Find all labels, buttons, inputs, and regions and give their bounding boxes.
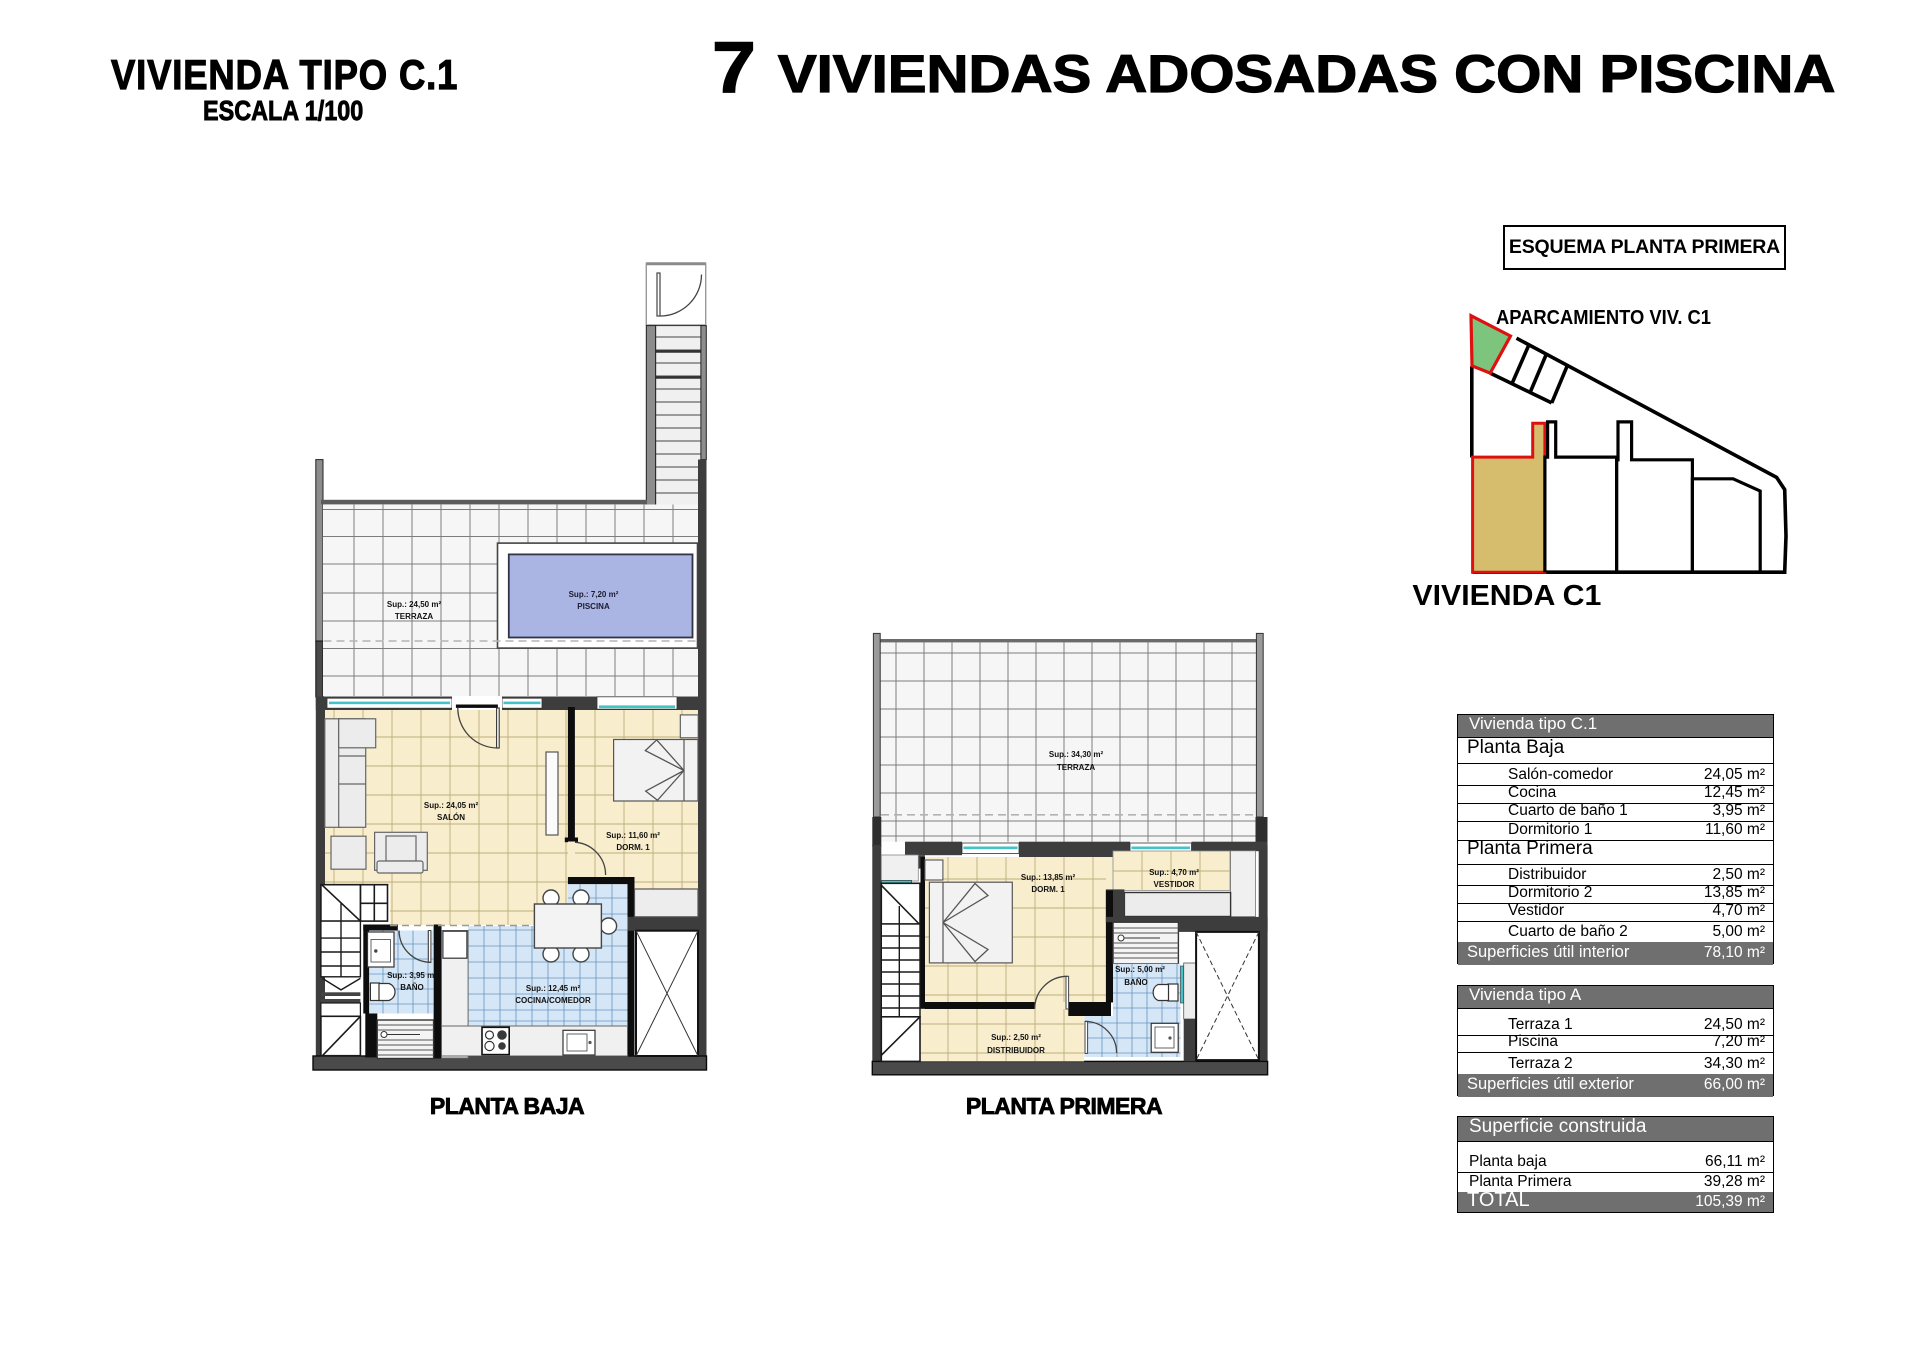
svg-text:Sup.: 13,85 m²: Sup.: 13,85 m²	[1021, 873, 1076, 882]
svg-text:TERRAZA: TERRAZA	[395, 612, 433, 621]
svg-text:Sup.: 11,60 m²: Sup.: 11,60 m²	[606, 831, 660, 840]
svg-text:DORM. 1: DORM. 1	[616, 843, 650, 852]
svg-text:Sup.: 7,20 m²: Sup.: 7,20 m²	[569, 590, 619, 599]
svg-text:SALÓN: SALÓN	[437, 813, 465, 822]
svg-text:BAÑO: BAÑO	[400, 983, 424, 992]
svg-text:DORM. 1: DORM. 1	[1031, 885, 1065, 894]
svg-text:COCINA/COMEDOR: COCINA/COMEDOR	[515, 996, 591, 1005]
svg-text:APARCAMIENTO VIV. C1: APARCAMIENTO VIV. C1	[1496, 307, 1711, 329]
svg-text:Sup.: 12,45 m²: Sup.: 12,45 m²	[526, 984, 581, 993]
svg-text:Sup.: 5,00 m²: Sup.: 5,00 m²	[1115, 965, 1165, 974]
svg-text:Sup.: 3,95 m²: Sup.: 3,95 m²	[387, 971, 437, 980]
svg-text:Sup.: 34,30 m²: Sup.: 34,30 m²	[1049, 750, 1104, 759]
svg-text:DISTRIBUIDOR: DISTRIBUIDOR	[987, 1046, 1045, 1055]
svg-text:PISCINA: PISCINA	[577, 602, 610, 611]
svg-text:VESTIDOR: VESTIDOR	[1154, 880, 1195, 889]
svg-text:Sup.: 4,70 m²: Sup.: 4,70 m²	[1149, 868, 1199, 877]
svg-text:Sup.: 2,50 m²: Sup.: 2,50 m²	[991, 1033, 1041, 1042]
svg-text:Sup.: 24,50 m²: Sup.: 24,50 m²	[387, 600, 442, 609]
svg-text:BAÑO: BAÑO	[1124, 978, 1148, 987]
svg-text:Sup.: 24,05 m²: Sup.: 24,05 m²	[424, 801, 479, 810]
svg-text:TERRAZA: TERRAZA	[1057, 763, 1095, 772]
svg-text:VIVIENDA C1: VIVIENDA C1	[1412, 580, 1601, 612]
